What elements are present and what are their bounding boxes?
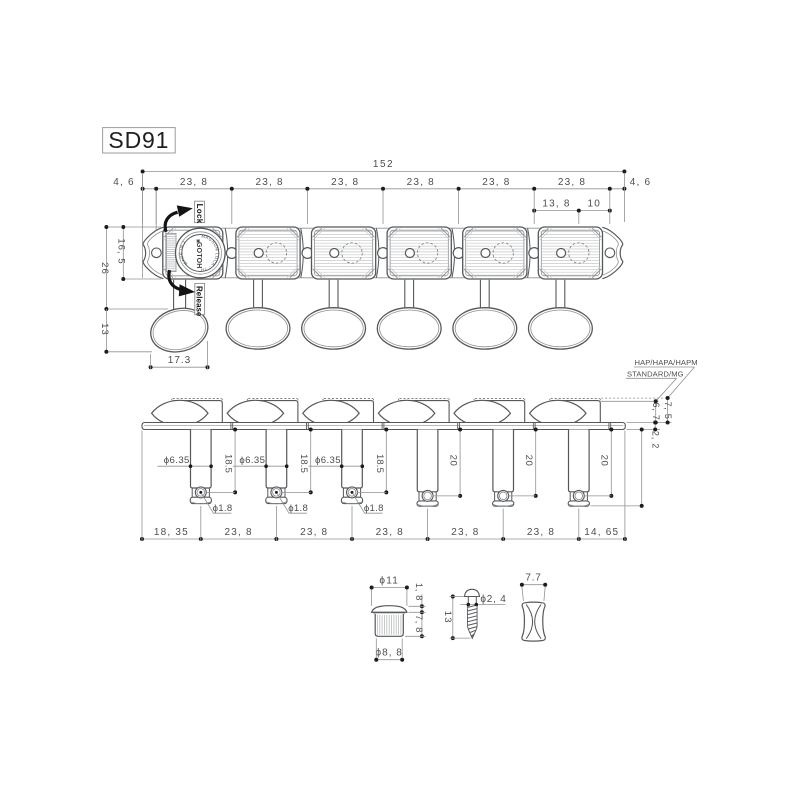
svg-text:20: 20 xyxy=(599,455,610,467)
svg-text:23, 8: 23, 8 xyxy=(300,527,328,538)
svg-text:23, 8: 23, 8 xyxy=(376,527,404,538)
svg-text:17.3: 17.3 xyxy=(168,355,191,366)
svg-text:152: 152 xyxy=(373,159,394,170)
svg-text:20: 20 xyxy=(523,455,534,467)
svg-text:10: 10 xyxy=(588,198,602,209)
svg-text:23, 8: 23, 8 xyxy=(180,177,208,188)
svg-text:16, 5: 16, 5 xyxy=(116,238,127,264)
svg-text:13: 13 xyxy=(442,611,453,624)
svg-text:13: 13 xyxy=(99,323,110,336)
svg-text:18.5: 18.5 xyxy=(224,454,235,473)
svg-text:26: 26 xyxy=(99,262,110,275)
svg-text:STANDARD/MG: STANDARD/MG xyxy=(627,369,684,378)
svg-text:GOTOH: GOTOH xyxy=(195,242,202,269)
svg-text:18.5: 18.5 xyxy=(299,454,310,473)
svg-text:4, 6: 4, 6 xyxy=(113,177,134,188)
svg-text:23, 8: 23, 8 xyxy=(482,177,510,188)
svg-text:23, 8: 23, 8 xyxy=(255,177,283,188)
svg-text:HAP/HAPA/HAPM: HAP/HAPA/HAPM xyxy=(635,358,698,367)
svg-text:ϕ1.8: ϕ1.8 xyxy=(213,503,233,514)
svg-text:ϕ6.35: ϕ6.35 xyxy=(239,455,265,466)
svg-text:Lock: Lock xyxy=(195,204,204,224)
svg-text:ϕ2, 4: ϕ2, 4 xyxy=(480,594,506,605)
svg-text:23, 8: 23, 8 xyxy=(527,527,555,538)
svg-text:ϕ1.8: ϕ1.8 xyxy=(364,503,384,514)
svg-text:6, 7: 6, 7 xyxy=(651,402,661,420)
svg-text:7, 8: 7, 8 xyxy=(414,615,424,633)
svg-text:ϕ8, 8: ϕ8, 8 xyxy=(376,648,403,659)
svg-text:18.5: 18.5 xyxy=(375,454,386,473)
svg-text:ϕ1.8: ϕ1.8 xyxy=(288,503,308,514)
svg-text:20: 20 xyxy=(447,455,458,467)
svg-text:14, 65: 14, 65 xyxy=(584,527,619,538)
svg-text:23, 8: 23, 8 xyxy=(407,177,435,188)
svg-text:4, 6: 4, 6 xyxy=(630,177,651,188)
svg-text:18, 35: 18, 35 xyxy=(154,527,189,538)
svg-text:2, 2: 2, 2 xyxy=(651,431,661,449)
svg-text:1, 8: 1, 8 xyxy=(414,583,424,601)
svg-text:23, 8: 23, 8 xyxy=(331,177,359,188)
svg-text:7, 5: 7, 5 xyxy=(663,401,673,419)
svg-text:ϕ6.35: ϕ6.35 xyxy=(315,455,341,466)
svg-text:7.7: 7.7 xyxy=(525,573,541,584)
svg-text:23, 8: 23, 8 xyxy=(451,527,479,538)
svg-text:ϕ11: ϕ11 xyxy=(379,575,399,586)
svg-text:23, 8: 23, 8 xyxy=(224,527,252,538)
svg-text:23, 8: 23, 8 xyxy=(558,177,586,188)
svg-text:SD91: SD91 xyxy=(108,127,169,153)
svg-text:Release: Release xyxy=(195,286,204,317)
svg-text:ϕ6.35: ϕ6.35 xyxy=(164,455,190,466)
svg-text:13, 8: 13, 8 xyxy=(542,198,570,209)
